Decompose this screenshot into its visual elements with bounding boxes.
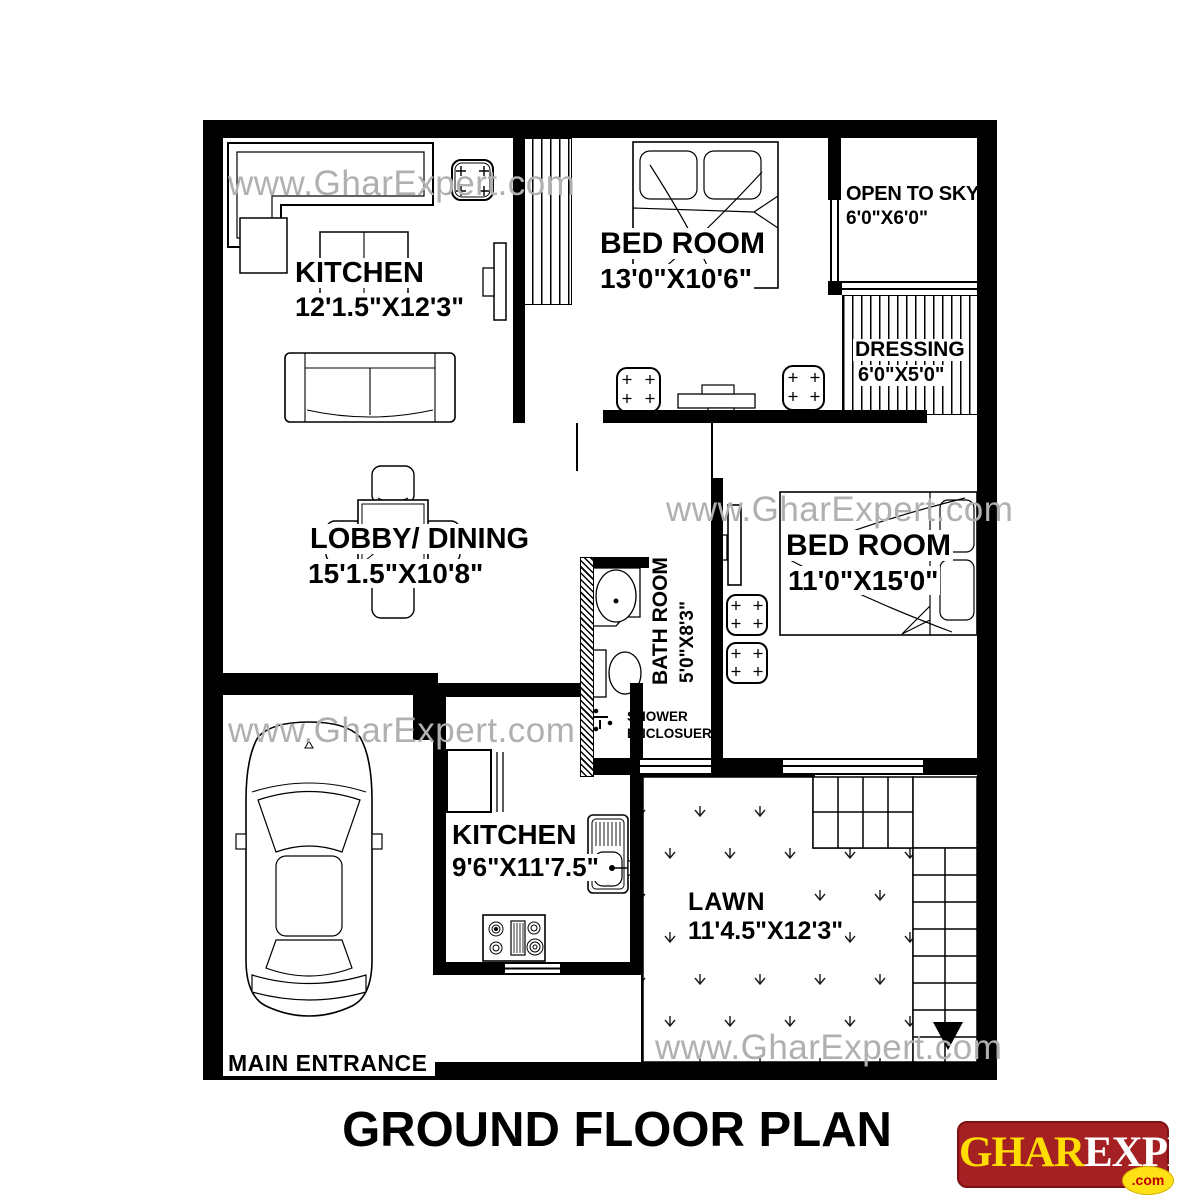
bedroom-right-dims: 11'0"X15'0" — [786, 566, 940, 595]
window — [842, 281, 977, 295]
wall — [711, 758, 783, 775]
page-title: GROUND FLOOR PLAN — [200, 1102, 1034, 1158]
bathroom-name: BATH ROOM — [649, 554, 673, 688]
main-entrance-label: MAIN ENTRANCE — [226, 1052, 429, 1076]
logo-ghar: GHAR — [959, 1129, 1084, 1176]
wall — [923, 758, 977, 775]
wall — [585, 557, 653, 568]
bedroom-right-stools — [727, 595, 767, 683]
main-entrance-underline — [223, 1076, 435, 1080]
kitchen-bottom-dims: 9'6"X11'7.5" — [450, 854, 601, 881]
kitchen-top-sofa — [285, 353, 455, 422]
bathroom-dims: 5'0"X8'3" — [677, 598, 699, 686]
window — [505, 962, 560, 975]
gharexpert-logo: GHAREXPERT .com — [957, 1121, 1169, 1188]
bathroom-hatched-wall — [580, 557, 594, 777]
wall — [223, 673, 413, 695]
watermark: www.GharExpert.com — [655, 1028, 1002, 1068]
watermark: www.GharExpert.com — [228, 711, 575, 751]
watermark: www.GharExpert.com — [228, 164, 575, 204]
floor-plan-canvas: KITCHEN 12'1.5"X12'3" BED ROOM 13'0"X10'… — [0, 0, 1200, 1200]
lawn-name: LAWN — [686, 889, 768, 915]
open-to-sky-dims: 6'0"X6'0" — [844, 209, 930, 229]
logo-com-badge: .com — [1122, 1166, 1174, 1195]
wall — [203, 120, 997, 138]
lawn-edge-line — [643, 775, 815, 777]
shower-enclosure-label: SHOWER ENCLOSUERS — [627, 708, 721, 742]
window — [640, 758, 711, 775]
kitchen-top-door-leaf — [483, 243, 506, 320]
watermark: www.GharExpert.com — [666, 490, 1013, 530]
floor-plan-linework — [0, 0, 1200, 1200]
partition-line — [711, 423, 713, 480]
bedroom-right-name: BED ROOM — [784, 530, 953, 561]
wall — [828, 281, 842, 295]
bathroom-shower-head — [594, 709, 612, 731]
wall — [977, 120, 997, 1080]
lobby-dining-dims: 15'1.5"X10'8" — [306, 559, 485, 588]
lawn-dims: 11'4.5"X12'3" — [686, 918, 845, 944]
wall — [603, 410, 927, 423]
kitchen-bottom-stove — [483, 915, 545, 961]
bathroom-washbasin — [593, 568, 640, 626]
window — [783, 758, 923, 775]
wall — [828, 138, 841, 200]
shower-label-line1: SHOWER — [627, 708, 721, 725]
lawn-edge-line — [641, 975, 643, 1062]
bedroom-top-dims: 13'0"X10'6" — [598, 264, 754, 293]
shower-label-line2: ENCLOSUERS — [627, 725, 721, 742]
wall — [203, 120, 223, 1080]
dressing-dims: 6'0"X5'0" — [856, 365, 946, 386]
lobby-dining-name: LOBBY/ DINING — [308, 524, 531, 554]
wall — [446, 683, 580, 697]
kitchen-bottom-fridge — [447, 750, 503, 812]
car — [236, 722, 382, 1016]
dressing-name: DRESSING — [853, 339, 967, 361]
kitchen-top-dims: 12'1.5"X12'3" — [293, 293, 466, 321]
kitchen-bottom-name: KITCHEN — [450, 820, 578, 849]
window — [830, 200, 839, 281]
open-to-sky-name: OPEN TO SKY — [844, 184, 981, 205]
bedroom-top-name: BED ROOM — [598, 228, 767, 259]
kitchen-top-name: KITCHEN — [293, 258, 426, 288]
